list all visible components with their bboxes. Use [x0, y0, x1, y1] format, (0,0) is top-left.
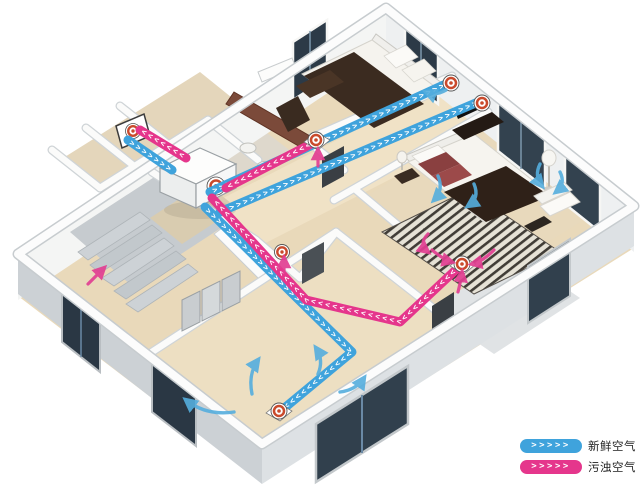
supply-vent-icon [474, 95, 490, 111]
isometric-house-illustration: >>>>>>>>>>>>>>>>>>>>>>>>>>>>>>>>>>>>>>>>… [0, 0, 640, 485]
extract-vent-icon [275, 245, 290, 260]
chevrons-icon: >>>>> [531, 460, 571, 474]
legend-row-polluted-air: >>>>> 污浊空气 [520, 459, 636, 475]
fresh-air-swatch: >>>>> [520, 439, 582, 453]
legend-label-fresh-air: 新鲜空气 [588, 438, 636, 454]
lamp [397, 151, 407, 163]
chevrons-icon: >>>>> [531, 439, 571, 453]
legend: >>>>> 新鲜空气 >>>>> 污浊空气 [520, 438, 636, 475]
polluted-air-swatch: >>>>> [520, 460, 582, 474]
ventilation-diagram-figure: >>>>>>>>>>>>>>>>>>>>>>>>>>>>>>>>>>>>>>>>… [0, 0, 640, 485]
legend-row-fresh-air: >>>>> 新鲜空气 [520, 438, 636, 454]
legend-label-polluted-air: 污浊空气 [588, 459, 636, 475]
